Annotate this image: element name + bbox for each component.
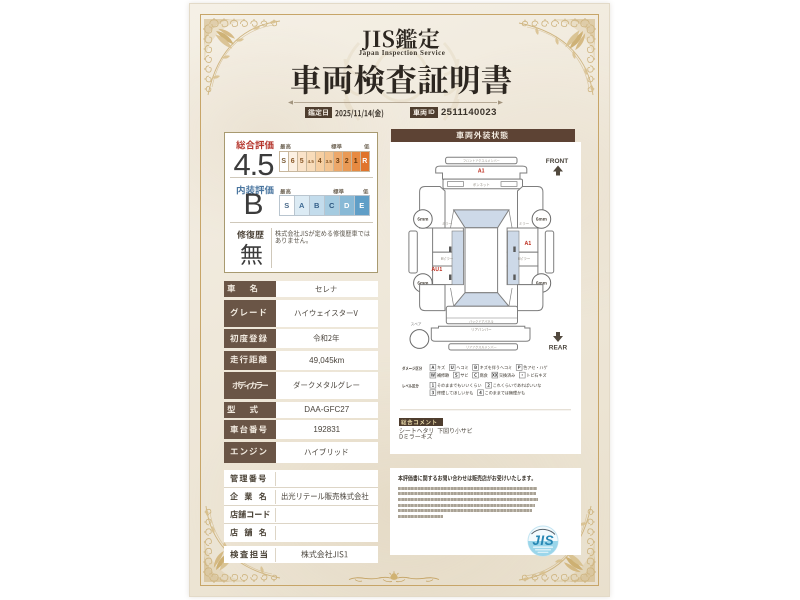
svg-text:JIS: JIS [532,533,554,548]
svg-text:FRONT: FRONT [546,158,568,165]
svg-text:REAR: REAR [549,345,568,352]
